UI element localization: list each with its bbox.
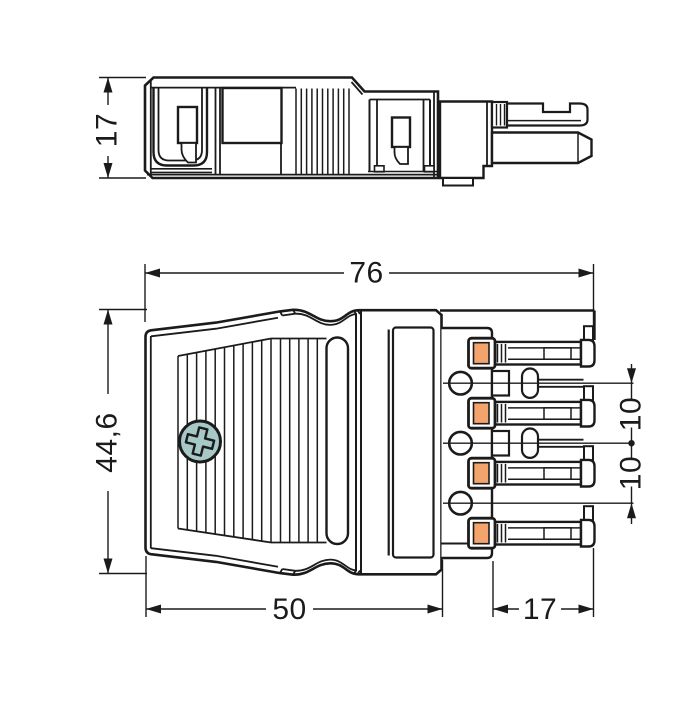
- arrow-down-icon: [104, 163, 113, 178]
- arrow-left-icon: [493, 605, 508, 614]
- arrow-down-icon: [627, 368, 636, 383]
- contact-pin-4: [494, 506, 595, 546]
- dim-label-side-height: 17: [91, 113, 124, 147]
- cage-clamp-2: [469, 398, 496, 428]
- technical-drawing-canvas: 17: [0, 0, 697, 703]
- side-upper-pin: [492, 102, 588, 128]
- dimension-contact-pitch: 10 10: [615, 364, 648, 524]
- front-view: 76 44,6 10 10: [91, 257, 648, 627]
- dimension-total-height: 44,6: [91, 310, 148, 574]
- chain-dot-icon: [628, 440, 634, 446]
- arrow-up-icon: [104, 78, 113, 93]
- arrow-up-icon: [627, 503, 636, 518]
- side-collar: [440, 102, 492, 186]
- technical-drawing-page: 17: [0, 0, 697, 703]
- dim-label-pitch-upper: 10: [615, 397, 648, 431]
- side-view: 17: [91, 78, 592, 186]
- locking-screw: [180, 421, 221, 462]
- side-window: [223, 88, 282, 143]
- dim-label-pitch-lower: 10: [615, 456, 648, 490]
- cage-clamp-3: [469, 458, 496, 488]
- dim-label-pin-length: 17: [523, 593, 557, 626]
- cage-clamp-4: [469, 518, 496, 548]
- dim-label-total-width: 76: [349, 257, 383, 290]
- arrow-right-icon: [579, 605, 594, 614]
- contact-pin-1: [494, 326, 595, 366]
- side-lower-pin: [492, 133, 592, 164]
- dim-label-body-width: 50: [272, 593, 306, 626]
- arrow-left-icon: [145, 269, 160, 278]
- arrow-right-icon: [428, 605, 443, 614]
- arrow-right-icon: [579, 269, 594, 278]
- front-grip-slot: [327, 338, 349, 545]
- front-face-panel: [389, 328, 434, 558]
- arrow-down-icon: [104, 559, 113, 574]
- cage-clamp-1: [469, 338, 496, 368]
- dimension-side-height: 17: [91, 78, 147, 179]
- arrow-left-icon: [146, 605, 161, 614]
- arrow-up-icon: [104, 310, 113, 325]
- dimension-pin-length: 17: [493, 548, 594, 626]
- dim-label-total-height: 44,6: [91, 412, 124, 472]
